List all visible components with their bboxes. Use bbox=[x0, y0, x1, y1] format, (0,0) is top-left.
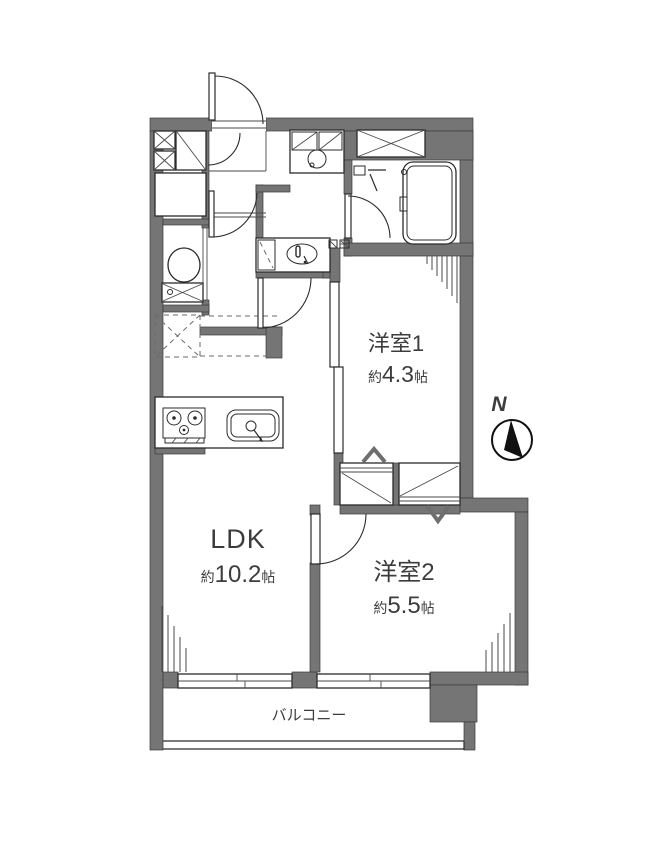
bath-door-leaf bbox=[345, 194, 351, 238]
fan-yoshitsu2 bbox=[486, 613, 510, 672]
floor-plan-drawing: 洋室1 約4.3帖 洋室2 約5.5帖 LDK 約10.2帖 バルコニー N bbox=[0, 0, 650, 867]
hall-door-arc bbox=[213, 193, 257, 237]
room-size-yoshitsu2: 約5.5帖 bbox=[373, 592, 434, 619]
shower-icon bbox=[354, 166, 386, 191]
washing-machine-icon bbox=[290, 130, 344, 173]
yoshitsu2-window bbox=[317, 674, 430, 688]
yoshitsu1-sliding-door bbox=[330, 282, 343, 453]
room-label-balcony: バルコニー bbox=[272, 707, 347, 724]
entrance bbox=[154, 73, 266, 237]
fan-ldk bbox=[162, 606, 186, 672]
ldk-window bbox=[178, 674, 292, 688]
washbasin-icon bbox=[256, 238, 330, 272]
washroom-door-arc bbox=[261, 278, 311, 328]
bathtub-icon bbox=[400, 162, 456, 244]
toilet-icon bbox=[162, 248, 203, 302]
room-size-yoshitsu1: 約4.3帖 bbox=[368, 361, 428, 387]
compass-needle bbox=[504, 420, 523, 458]
entrance-door-leaf bbox=[209, 73, 215, 120]
closet-upper bbox=[340, 449, 393, 505]
hall-closet-door-arc bbox=[208, 133, 240, 165]
room-label-yoshitsu2: 洋室2 bbox=[373, 559, 434, 586]
floor-plan: 洋室1 約4.3帖 洋室2 約5.5帖 LDK 約10.2帖 バルコニー N bbox=[0, 0, 650, 867]
room-size-ldk: 約10.2帖 bbox=[201, 561, 276, 588]
entrance-cabinet bbox=[155, 173, 206, 216]
fan-yoshitsu1 bbox=[427, 256, 457, 303]
entrance-opening bbox=[212, 118, 266, 131]
toilet-room bbox=[162, 228, 207, 302]
room-label-ldk: LDK bbox=[210, 524, 266, 554]
compass-north-label: N bbox=[491, 393, 507, 416]
yoshitsu2-door bbox=[311, 514, 366, 564]
room-label-yoshitsu1: 洋室1 bbox=[368, 331, 424, 356]
balcony bbox=[163, 741, 464, 750]
entrance-door-arc bbox=[215, 76, 263, 124]
compass-icon: N bbox=[491, 393, 532, 460]
washroom-door-leaf bbox=[258, 278, 263, 328]
bath-door-arc bbox=[348, 196, 390, 238]
hall-door-leaf bbox=[209, 191, 214, 237]
kitchen bbox=[155, 397, 283, 448]
